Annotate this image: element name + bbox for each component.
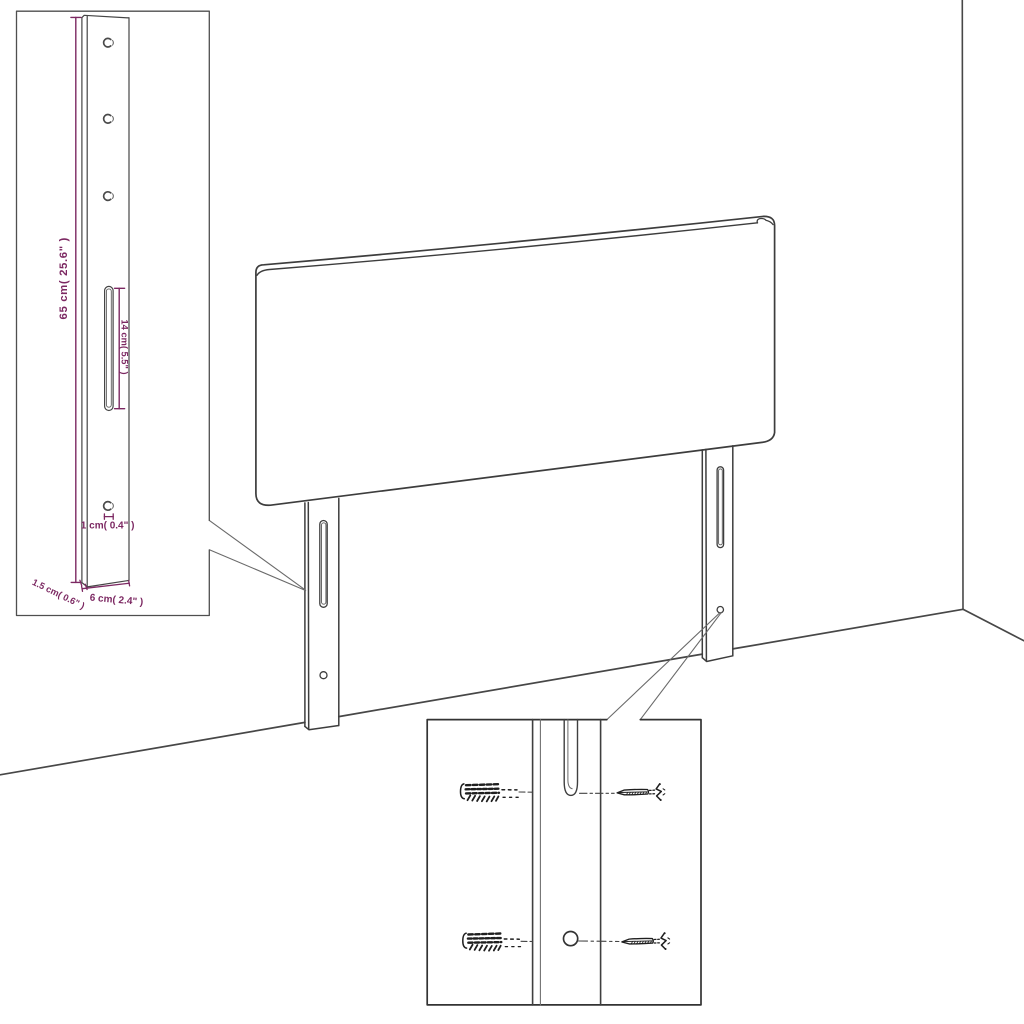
svg-text:14 cm( 5.5" ): 14 cm( 5.5" ) bbox=[120, 320, 130, 375]
svg-text:65 cm( 25.6" ): 65 cm( 25.6" ) bbox=[58, 237, 70, 319]
svg-text:1 cm( 0.4" ): 1 cm( 0.4" ) bbox=[81, 521, 135, 532]
svg-text:6 cm( 2.4" ): 6 cm( 2.4" ) bbox=[89, 593, 143, 609]
